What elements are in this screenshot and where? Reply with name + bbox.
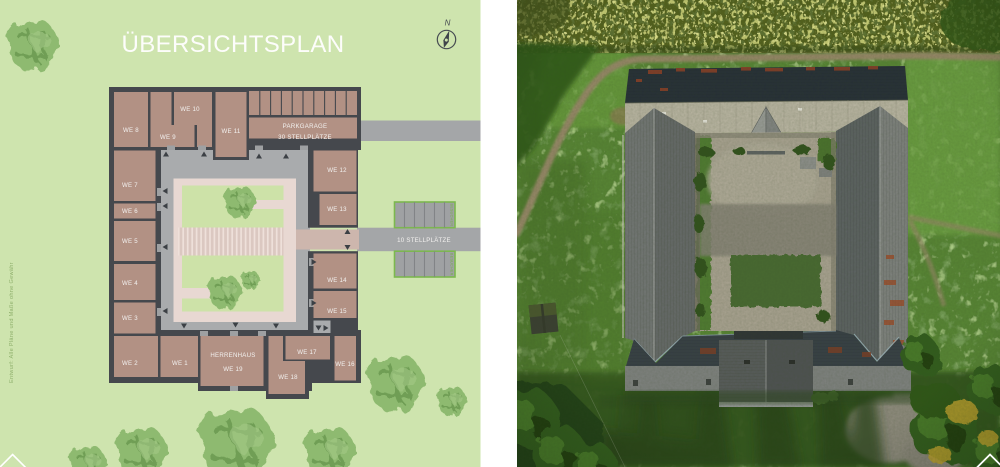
svg-text:WE 1: WE 1 [172,360,188,367]
svg-text:WE 15: WE 15 [327,308,347,315]
svg-text:Entwurf: Alle Pläne und Maße o: Entwurf: Alle Pläne und Maße ohne Gewähr [9,262,15,383]
svg-text:WE 18: WE 18 [278,374,298,381]
svg-text:WE 19: WE 19 [223,366,243,373]
svg-text:10 STELLPLÄTZE: 10 STELLPLÄTZE [397,237,451,244]
svg-text:WE 7: WE 7 [122,182,138,189]
svg-text:WE 12: WE 12 [327,167,347,174]
svg-text:BESUCHER: BESUCHER [449,253,453,276]
svg-text:WE 14: WE 14 [327,277,347,284]
svg-text:WE 5: WE 5 [122,238,138,245]
svg-text:WE 6: WE 6 [122,208,138,215]
svg-text:ÜBERSICHTSPLAN: ÜBERSICHTSPLAN [122,31,345,58]
svg-text:PARKGARAGE: PARKGARAGE [283,123,328,130]
svg-text:BESUCHER: BESUCHER [449,203,453,226]
svg-text:WE 4: WE 4 [122,280,138,287]
svg-text:WE 9: WE 9 [160,134,176,141]
svg-text:WE 11: WE 11 [221,128,240,135]
svg-text:WE 16: WE 16 [335,361,355,368]
svg-text:WE 17: WE 17 [297,349,317,356]
svg-text:WE 8: WE 8 [123,127,139,134]
svg-text:HERRENHAUS: HERRENHAUS [210,352,255,359]
svg-text:WE 2: WE 2 [122,360,138,367]
svg-text:WE 3: WE 3 [122,315,138,322]
svg-text:30 STELLPLÄTZE: 30 STELLPLÄTZE [278,134,332,141]
svg-text:N: N [445,19,451,28]
svg-text:WE 10: WE 10 [180,106,200,113]
svg-text:WE 13: WE 13 [327,206,347,213]
